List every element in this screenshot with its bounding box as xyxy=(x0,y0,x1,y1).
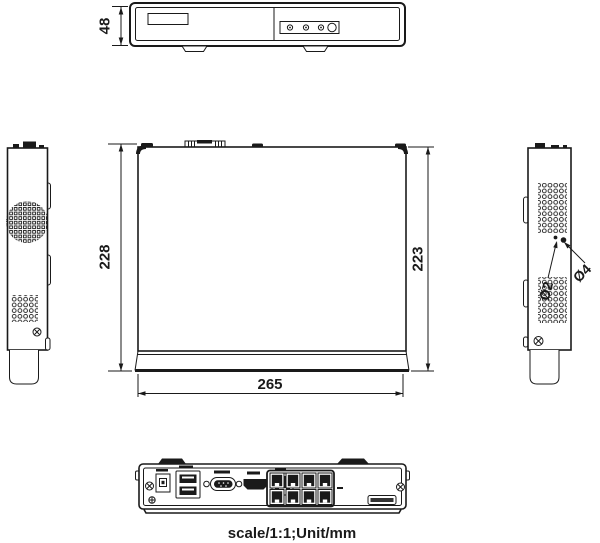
dim-label-265: 265 xyxy=(257,376,282,393)
top-bracket xyxy=(337,459,369,465)
poe-port xyxy=(302,473,316,488)
top-bracket xyxy=(158,459,186,465)
poe-port xyxy=(318,490,332,505)
back-view xyxy=(136,459,410,514)
reset-slot xyxy=(337,487,343,489)
fan-vent xyxy=(6,201,48,243)
vga-screw-icon xyxy=(236,481,242,487)
side-tab xyxy=(46,338,51,350)
certification-label xyxy=(368,496,396,505)
dimension-depth-body: 223 xyxy=(408,147,434,371)
dimension-front-height: 48 xyxy=(97,7,129,46)
dia-label-4: Ø4 xyxy=(570,261,595,286)
technical-drawing-page: 48 xyxy=(0,0,600,543)
screw-icon xyxy=(33,328,41,336)
front-bezel-strip xyxy=(135,351,409,371)
vent-grid xyxy=(11,295,38,322)
dim-label-228: 228 xyxy=(97,244,114,269)
nvr-dimension-drawing: 48 xyxy=(0,0,600,543)
scale-caption: scale/1:1;Unit/mm xyxy=(228,525,356,542)
poe-port xyxy=(270,473,284,488)
front-foot-left xyxy=(182,46,207,52)
side-view-right xyxy=(524,143,572,384)
side-foot xyxy=(530,350,559,384)
side-foot xyxy=(10,350,39,384)
poe-port xyxy=(318,473,332,488)
poe-port xyxy=(302,490,316,505)
poe-port-block xyxy=(267,471,334,507)
screw-icon xyxy=(397,483,405,491)
front-foot-right xyxy=(303,46,328,52)
dimension-depth-total: 228 xyxy=(97,144,138,371)
front-view xyxy=(130,3,405,52)
poe-port xyxy=(286,490,300,505)
ir-receiver-icon xyxy=(328,23,336,31)
poe-port xyxy=(286,473,300,488)
arrowhead-icon xyxy=(119,38,124,46)
screw-icon xyxy=(534,337,543,346)
dim-label-48: 48 xyxy=(97,18,114,35)
port-label xyxy=(179,466,193,469)
vent-grid xyxy=(538,183,567,233)
port-label xyxy=(214,471,230,474)
bottom-lip xyxy=(144,510,401,514)
arrowhead-icon xyxy=(426,364,431,372)
ground-screw-icon xyxy=(149,497,155,503)
port-label xyxy=(156,469,168,472)
arrowhead-icon xyxy=(138,391,146,396)
arrowhead-icon xyxy=(119,364,124,372)
vga-screw-icon xyxy=(204,481,210,487)
dimension-width: 265 xyxy=(138,374,403,397)
screw-icon xyxy=(146,482,154,490)
top-view xyxy=(135,140,409,371)
arrowhead-icon xyxy=(426,147,431,155)
vent-hole-2mm xyxy=(554,236,558,240)
vent-hole-4mm xyxy=(561,237,567,243)
side-view-left xyxy=(6,142,51,385)
poe-port xyxy=(270,490,284,505)
port-label xyxy=(247,472,260,475)
dim-label-223: 223 xyxy=(410,246,427,271)
rear-connector-outline xyxy=(185,140,225,147)
arrowhead-icon xyxy=(396,391,404,396)
arrowhead-icon xyxy=(119,144,124,152)
arrowhead-icon xyxy=(119,7,124,15)
